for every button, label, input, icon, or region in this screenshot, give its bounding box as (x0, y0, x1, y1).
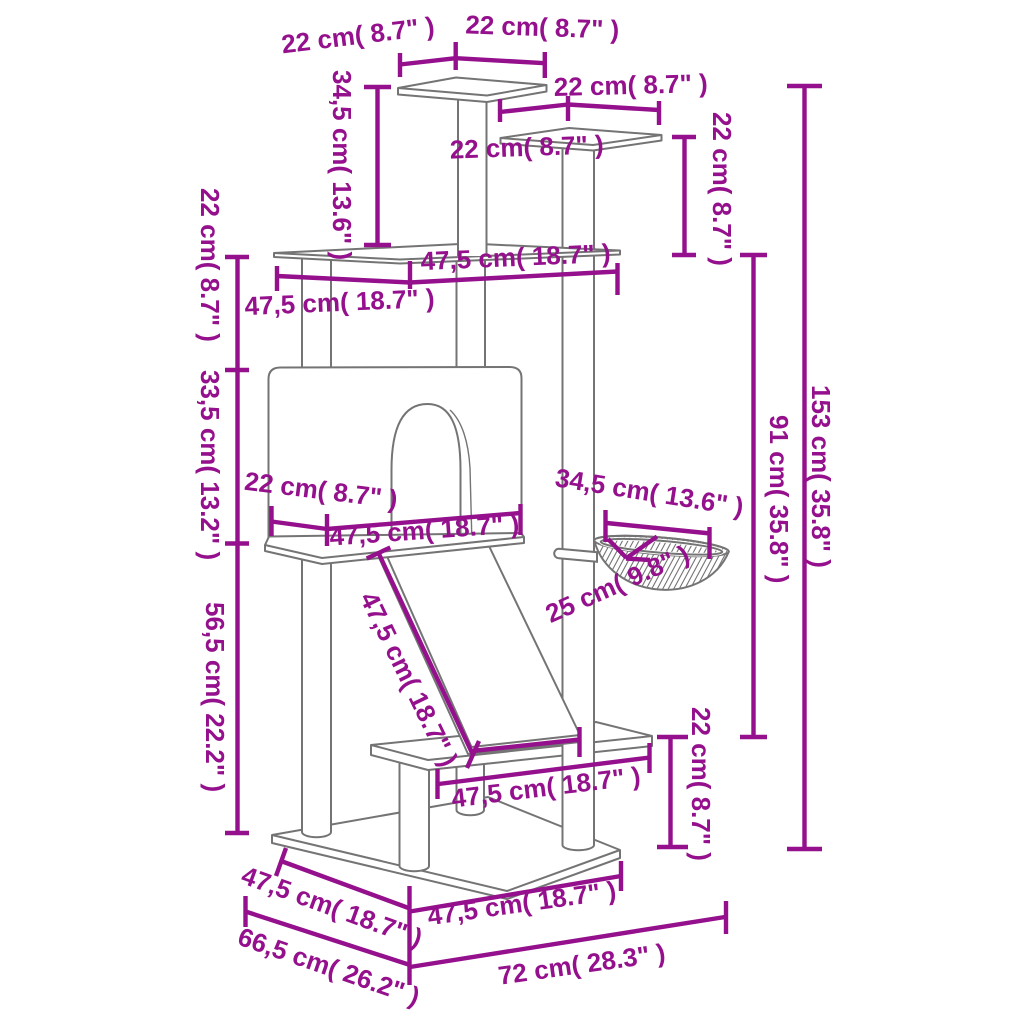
svg-text:22 cm( 8.7" ): 22 cm( 8.7" ) (707, 112, 737, 266)
svg-text:34,5 cm( 13.6" ): 34,5 cm( 13.6" ) (327, 70, 357, 260)
svg-text:22 cm( 8.7" ): 22 cm( 8.7" ) (449, 129, 604, 164)
svg-text:22 cm( 8.7" ): 22 cm( 8.7" ) (195, 188, 225, 342)
svg-text:22 cm( 8.7" ): 22 cm( 8.7" ) (465, 9, 620, 44)
svg-text:33,5 cm( 13.2" ): 33,5 cm( 13.2" ) (195, 370, 225, 560)
svg-text:91 cm( 35.8" ): 91 cm( 35.8" ) (764, 415, 794, 583)
svg-text:56,5 cm( 22.2" ): 56,5 cm( 22.2" ) (200, 602, 230, 792)
svg-text:22 cm( 8.7" ): 22 cm( 8.7" ) (553, 68, 708, 102)
svg-text:153 cm( 35.8" ): 153 cm( 35.8" ) (806, 385, 836, 568)
svg-text:22 cm( 8.7" ): 22 cm( 8.7" ) (686, 707, 716, 861)
